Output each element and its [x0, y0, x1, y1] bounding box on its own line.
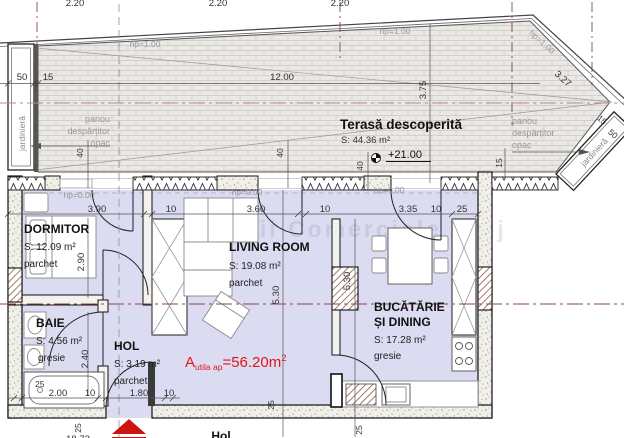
dim-40b: 40 [275, 148, 285, 158]
floor-plan-page: jardinieră Spatii Comerciale Cluj [0, 0, 624, 438]
panou-left-2: despărțitor [67, 126, 110, 136]
baie-area: S: 4.56 m² [36, 336, 83, 347]
chair [372, 258, 386, 273]
window-sill [60, 179, 92, 188]
chair [372, 236, 386, 251]
window-3 [302, 177, 364, 190]
dim-290: 2.90 [76, 253, 87, 272]
planter-left-label: jardinieră [17, 116, 27, 152]
dim-25a: 25 [457, 204, 468, 215]
dim-335: 3.35 [399, 204, 418, 215]
nightstand [24, 193, 48, 212]
window-5 [492, 177, 558, 190]
hp100-label-1: hp=1.00 [130, 39, 161, 49]
baie-floor: gresie [38, 353, 66, 364]
hol-title: HOL [114, 339, 139, 353]
dormitor-floor: parchet [24, 259, 58, 270]
panou-left-3: opac [90, 138, 110, 148]
dim-360: 3.60 [247, 204, 266, 215]
chair [434, 258, 448, 273]
kitchen-tall-cabinet [452, 219, 476, 335]
wall-living-kitchen-top [332, 219, 340, 267]
planter-left [8, 44, 38, 172]
dim-top-axis-2: 2.20 [209, 0, 228, 9]
dim-25b: 25 [73, 423, 83, 433]
hol-exterior-label: Hol [211, 429, 230, 438]
floor-plan-drawing: jardinieră Spatii Comerciale Cluj [0, 0, 624, 438]
dim-40c: 40 [355, 161, 365, 171]
window-1 [8, 177, 45, 190]
dim-40a: 40 [75, 148, 85, 158]
dim-200: 2.00 [49, 388, 68, 399]
dishwasher [346, 384, 376, 405]
hp000-label-1: hp=0.00 [64, 190, 95, 200]
dim-25c: 25 [266, 400, 276, 410]
panou-right-3: opac [512, 140, 532, 150]
panou-left-1: panou [85, 114, 110, 124]
dim-15b: 15 [494, 158, 504, 168]
dim-375: 3.75 [418, 81, 429, 100]
dim-1872: 18.72 [66, 434, 90, 438]
panou-right-2: despărțitor [512, 128, 555, 138]
dim-15: 15 [43, 72, 54, 83]
window-2 [133, 177, 217, 190]
dim-530a: 5.30 [271, 286, 282, 305]
baie-title: BAIE [36, 316, 65, 330]
bucatarie-title-2: ȘI DINING [374, 315, 431, 329]
window-4 [441, 177, 478, 190]
dim-530b: 5.30 [342, 272, 353, 291]
dim-top-axis-1: 2.20 [66, 0, 85, 9]
wall-pier-1 [45, 176, 60, 190]
dim-25d: 25 [354, 425, 364, 435]
total-area-a: A [185, 354, 195, 371]
total-area-sub: utila ap [195, 362, 223, 372]
dim-180: 1.80 [130, 388, 149, 399]
dim-10c: 10 [431, 204, 442, 215]
column-left [8, 268, 22, 302]
terasa-title: Terasă descoperită [340, 117, 463, 132]
dim-240: 2.40 [80, 350, 91, 369]
hp000-label-2: hp=0.00 [232, 187, 263, 197]
hol-floor: parchet [114, 376, 148, 387]
wall-living-kitchen-bottom [332, 310, 340, 355]
wall-baie-stub [98, 300, 108, 312]
bucatarie-title-1: BUCĂTĂRIE [374, 299, 445, 314]
windows [8, 177, 558, 190]
hp100-label-2: hp=1.00 [380, 26, 411, 36]
stove [452, 337, 476, 371]
dim-10d: 10 [85, 388, 96, 399]
total-area-sup: 2 [281, 353, 286, 364]
dim-390: 3.90 [88, 204, 107, 215]
panou-right-1: panou [512, 116, 537, 126]
entrance-arrow-icon [112, 419, 146, 438]
dim-1200: 12.00 [270, 72, 294, 83]
dim-top-axis-3: 2.20 [331, 0, 350, 9]
hol-area: S: 3.19 m² [114, 359, 161, 370]
dormitor-area: S: 12.09 m² [24, 242, 76, 253]
bucatarie-area: S: 17.28 m² [374, 335, 426, 346]
dim-10e: 10 [164, 388, 175, 399]
dim-10a: 10 [166, 204, 177, 215]
dim-50: 50 [17, 72, 28, 83]
entrance-threshold [106, 405, 152, 418]
total-area-eq: =56.20m [222, 354, 281, 371]
terasa-level: +21.00 [388, 149, 422, 161]
hp000-label-3: hp=0.00 [374, 185, 405, 195]
dim-10b: 10 [320, 204, 331, 215]
terasa-area: S: 44.36 m² [341, 135, 390, 146]
bucatarie-floor: gresie [374, 351, 402, 362]
living-floor: parchet [229, 278, 263, 289]
living-area: S: 19.08 m² [229, 261, 281, 272]
dim-25-baie: 25 [35, 379, 45, 389]
living-title: LIVING ROOM [229, 240, 310, 254]
closet [152, 219, 187, 335]
dormitor-title: DORMITOR [24, 222, 89, 236]
